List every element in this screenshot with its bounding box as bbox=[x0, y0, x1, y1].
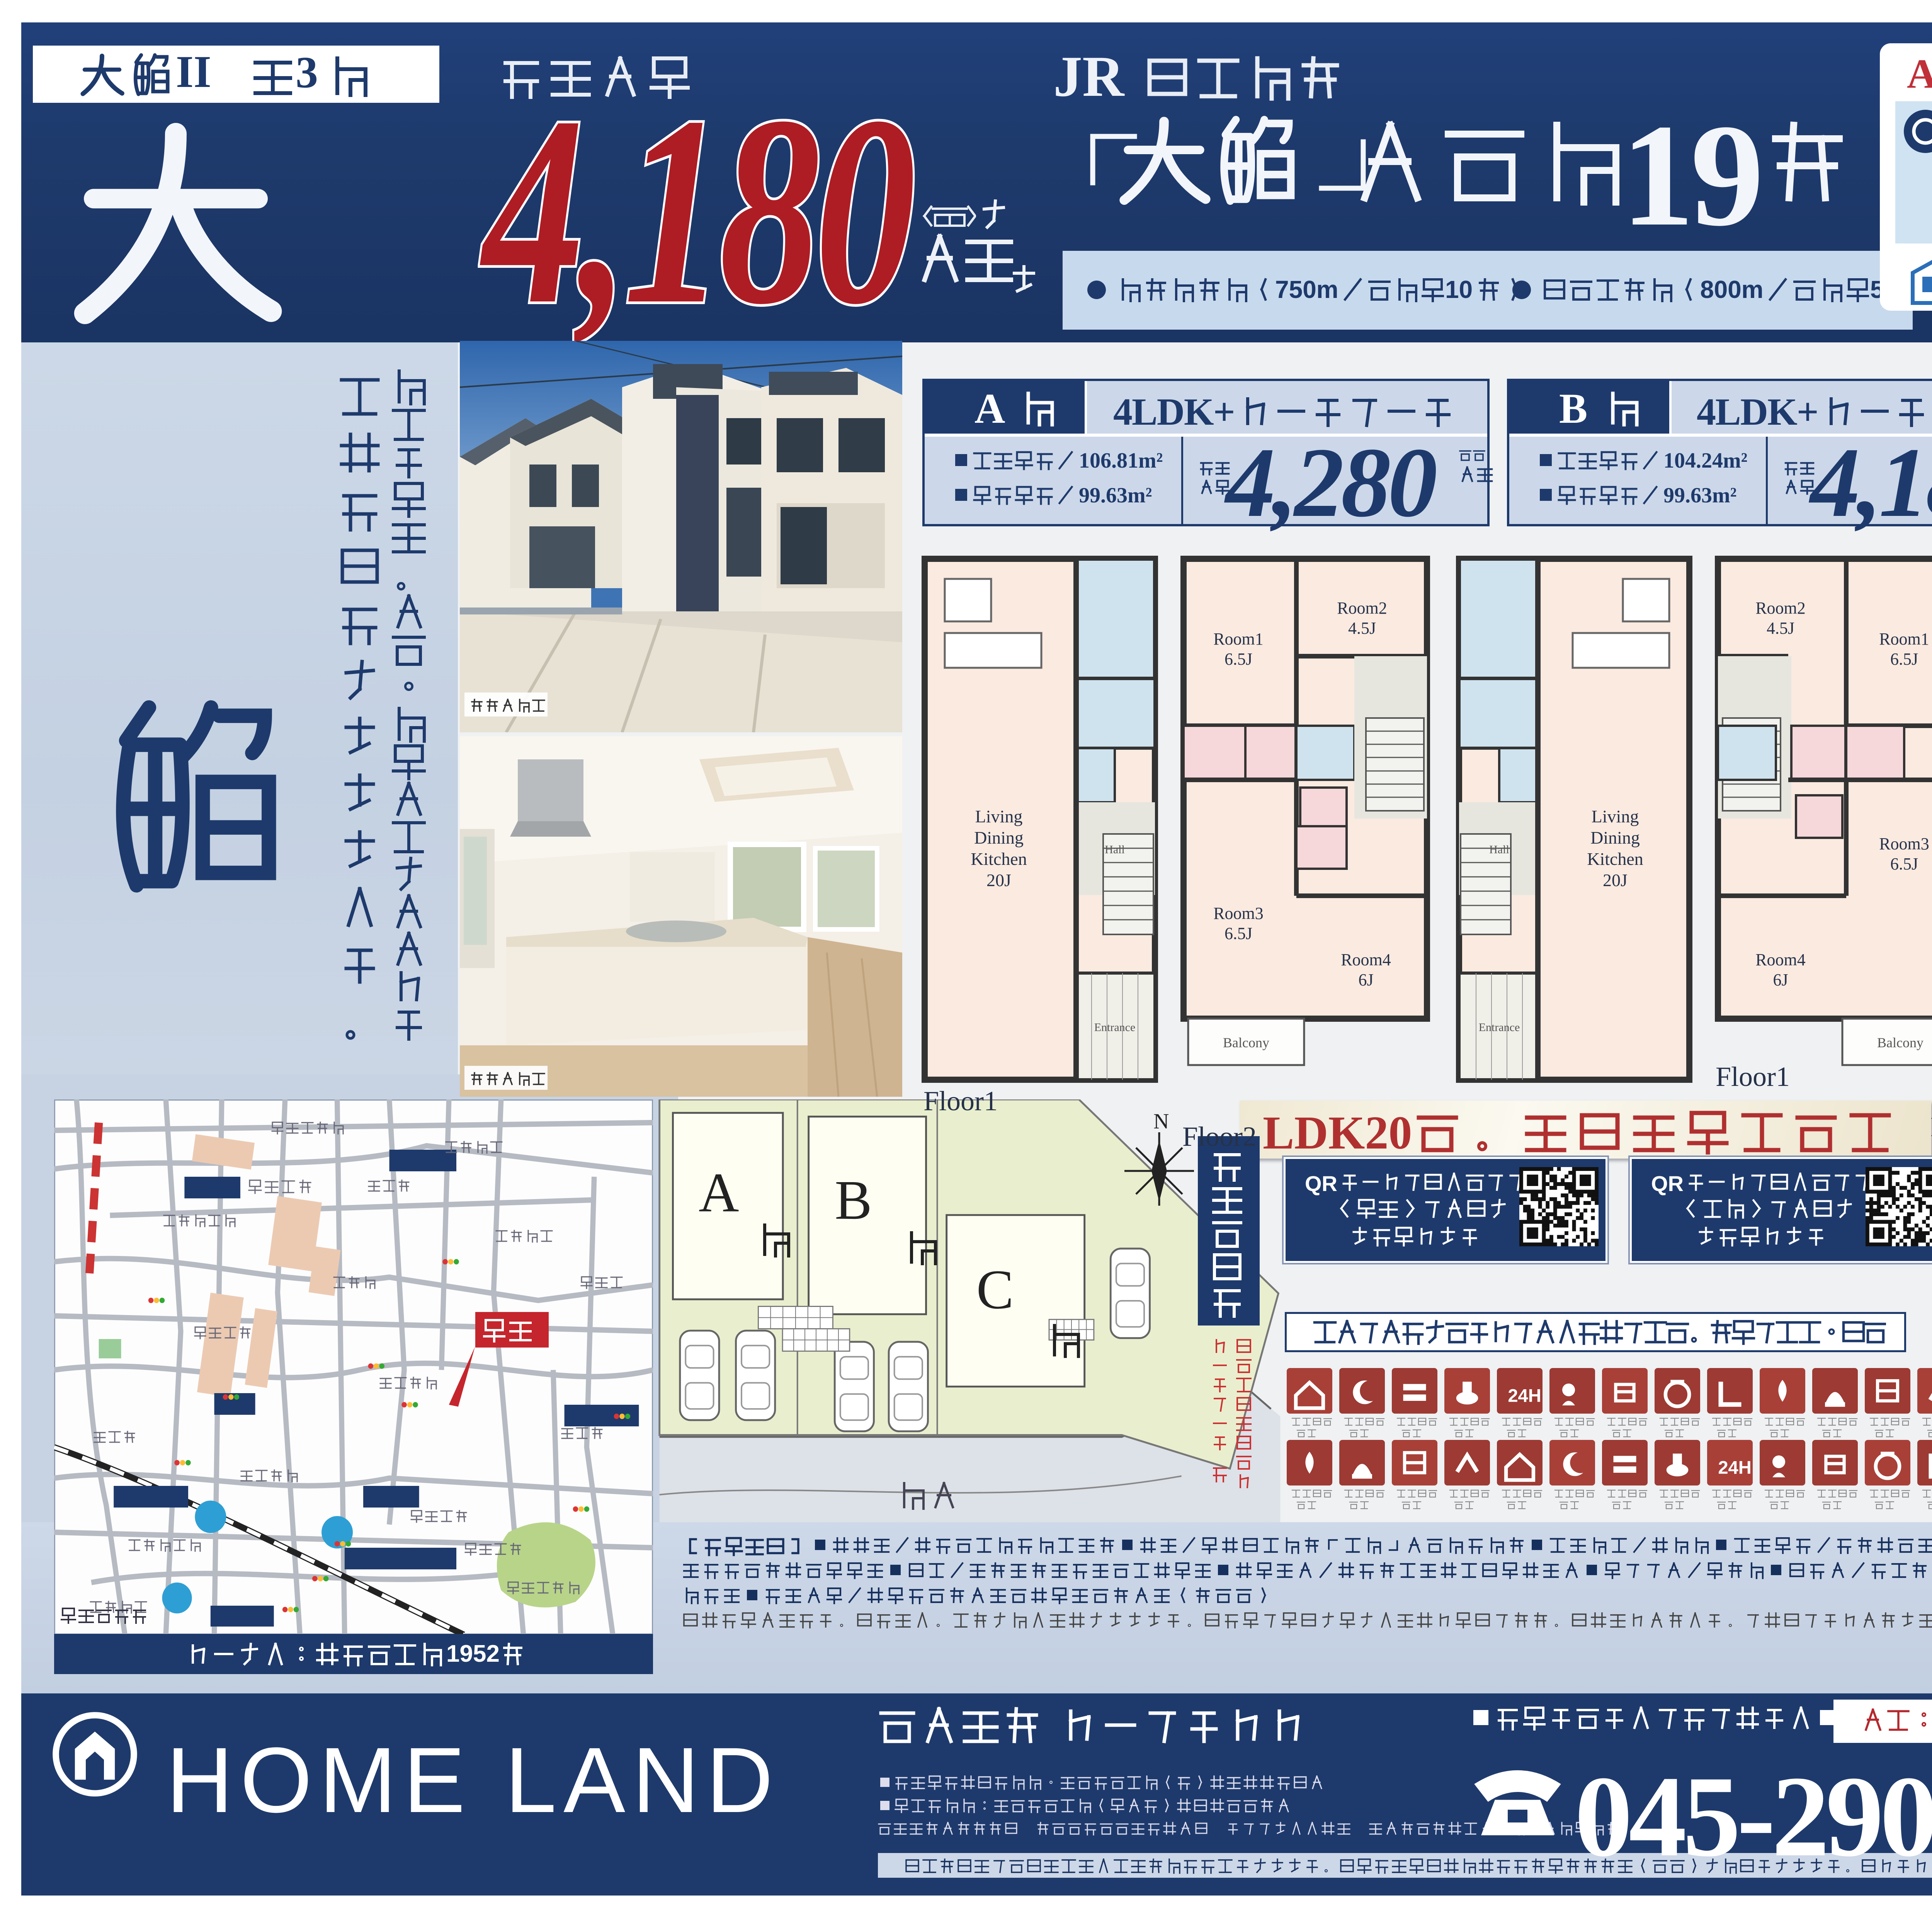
svg-text:C: C bbox=[976, 1259, 1014, 1320]
svg-text:6J: 6J bbox=[1358, 970, 1373, 989]
svg-text:Room3: Room3 bbox=[1879, 834, 1929, 853]
svg-text:Entrance: Entrance bbox=[1479, 1021, 1520, 1034]
svg-text:Room4: Room4 bbox=[1341, 950, 1391, 969]
svg-text:4.5J: 4.5J bbox=[1767, 619, 1794, 638]
svg-text:Room2: Room2 bbox=[1755, 599, 1806, 618]
svg-text:Room4: Room4 bbox=[1755, 950, 1806, 969]
svg-text:Entrance: Entrance bbox=[1094, 1021, 1136, 1034]
svg-text:Dining: Dining bbox=[1590, 828, 1640, 847]
svg-text:Room1: Room1 bbox=[1879, 630, 1929, 648]
svg-text:Balcony: Balcony bbox=[1223, 1035, 1269, 1050]
svg-text:6.5J: 6.5J bbox=[1890, 854, 1918, 873]
svg-text:20J: 20J bbox=[986, 870, 1011, 890]
svg-text:Living: Living bbox=[1592, 807, 1639, 826]
svg-text:20J: 20J bbox=[1603, 870, 1628, 890]
svg-text:Room1: Room1 bbox=[1213, 630, 1264, 648]
svg-text:Balcony: Balcony bbox=[1877, 1035, 1923, 1050]
svg-text:6.5J: 6.5J bbox=[1890, 650, 1918, 669]
svg-text:24H: 24H bbox=[1508, 1385, 1541, 1406]
svg-text:B: B bbox=[835, 1169, 872, 1231]
svg-text:N: N bbox=[1153, 1109, 1169, 1133]
svg-text:6.5J: 6.5J bbox=[1225, 650, 1252, 669]
svg-text:Hall: Hall bbox=[1489, 843, 1509, 856]
svg-text:Kitchen: Kitchen bbox=[971, 849, 1027, 869]
svg-text:Living: Living bbox=[975, 807, 1023, 826]
svg-text:6.5J: 6.5J bbox=[1225, 924, 1252, 943]
svg-text:24H: 24H bbox=[1718, 1457, 1752, 1478]
svg-text:A: A bbox=[699, 1162, 739, 1223]
svg-text:Kitchen: Kitchen bbox=[1587, 849, 1643, 869]
svg-text:6J: 6J bbox=[1773, 970, 1788, 989]
svg-text:Hall: Hall bbox=[1105, 843, 1125, 856]
svg-text:4.5J: 4.5J bbox=[1348, 619, 1376, 638]
svg-text:Room2: Room2 bbox=[1337, 599, 1387, 618]
svg-text:Dining: Dining bbox=[974, 828, 1024, 847]
svg-text:Room3: Room3 bbox=[1213, 904, 1264, 923]
